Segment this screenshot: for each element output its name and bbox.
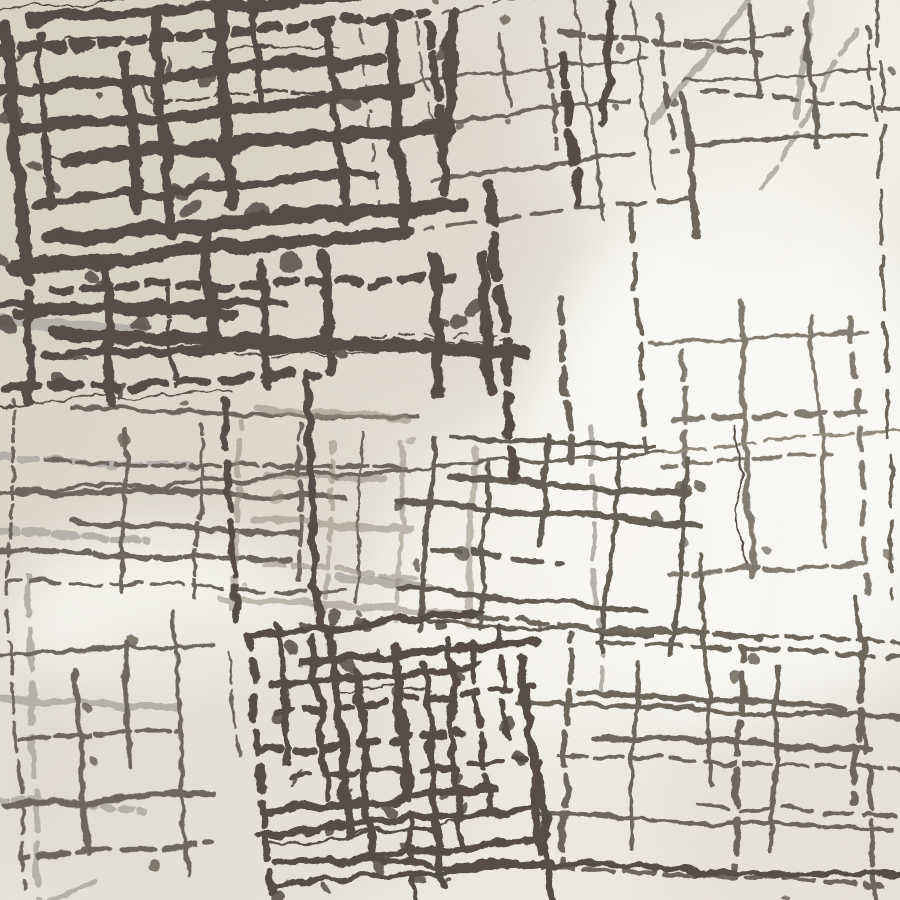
fabric-pattern-svg — [0, 0, 900, 900]
fabric-grain-texture — [0, 0, 900, 900]
fabric-photo — [0, 0, 900, 900]
